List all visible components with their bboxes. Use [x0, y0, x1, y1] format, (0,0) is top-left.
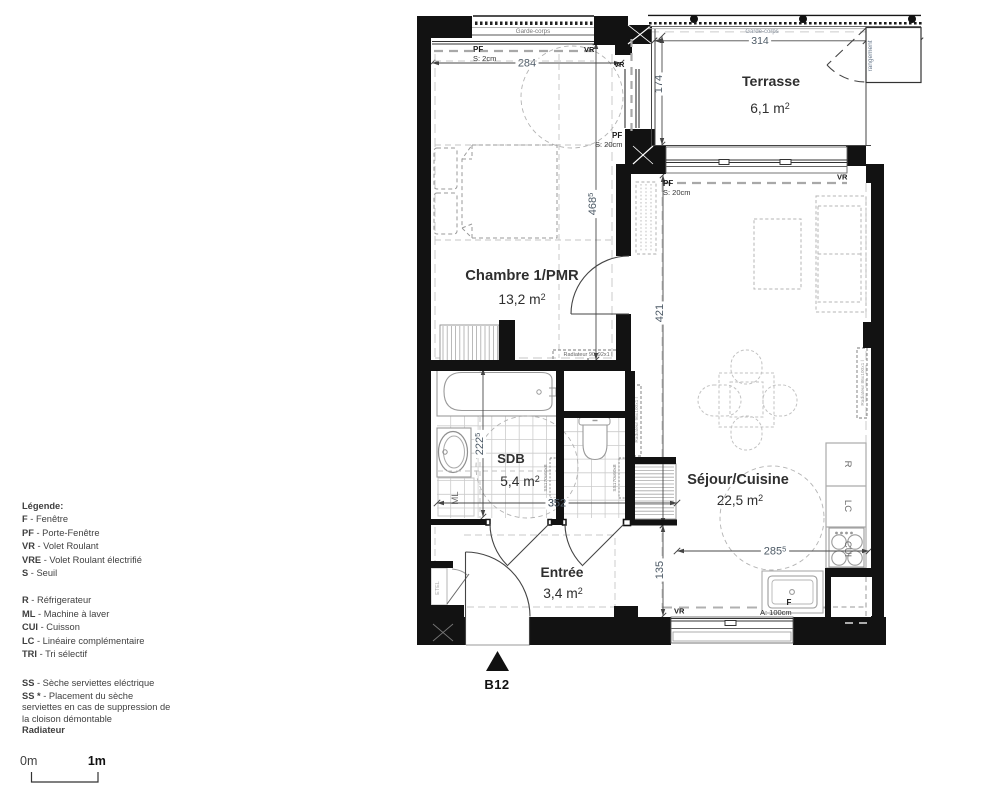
svg-text:Garde-corps: Garde-corps	[745, 29, 778, 35]
svg-text:PF: PF	[663, 179, 673, 188]
svg-text:22,5 m2: 22,5 m2	[717, 493, 763, 508]
svg-text:PF: PF	[612, 131, 622, 140]
svg-text:352: 352	[548, 498, 566, 510]
svg-text:3,4 m2: 3,4 m2	[543, 586, 583, 601]
svg-text:SS170x60x8: SS170x60x8	[543, 464, 549, 492]
svg-text:PF: PF	[473, 45, 483, 54]
svg-text:R: R	[842, 461, 853, 468]
svg-text:S: 20cm: S: 20cm	[663, 188, 691, 197]
svg-text:Terrasse: Terrasse	[742, 74, 800, 90]
svg-text:VR: VR	[614, 60, 625, 69]
svg-text:ETEL: ETEL	[435, 581, 441, 595]
svg-text:Radiateur 86x100x1 l: Radiateur 86x100x1 l	[860, 360, 866, 405]
svg-text:5,4 m2: 5,4 m2	[500, 474, 540, 489]
svg-text:LC: LC	[842, 500, 853, 512]
svg-text:6,1 m2: 6,1 m2	[750, 101, 790, 116]
svg-text:Garde-corps: Garde-corps	[516, 28, 550, 35]
svg-text:VR: VR	[584, 45, 595, 54]
svg-text:284: 284	[518, 58, 536, 70]
svg-text:rangement: rangement	[867, 40, 874, 71]
svg-text:VR: VR	[837, 173, 848, 182]
svg-text:13,2 m2: 13,2 m2	[498, 292, 545, 307]
svg-text:B12: B12	[484, 677, 509, 692]
svg-text:Entrée: Entrée	[541, 565, 584, 580]
svg-text:SDB: SDB	[497, 451, 524, 466]
svg-text:A: 100cm: A: 100cm	[760, 608, 792, 617]
svg-text:SS170x60x8: SS170x60x8	[612, 464, 618, 492]
svg-text:Chambre 1/PMR: Chambre 1/PMR	[465, 268, 579, 284]
svg-text:VR: VR	[674, 607, 685, 616]
svg-text:F: F	[787, 598, 792, 607]
svg-text:CUI: CUI	[842, 541, 853, 557]
svg-text:S: 2cm: S: 2cm	[473, 54, 496, 63]
svg-text:135: 135	[654, 561, 666, 579]
svg-text:421: 421	[654, 304, 666, 322]
svg-text:314: 314	[751, 35, 769, 47]
svg-text:Radiateur 90x92x1 l: Radiateur 90x92x1 l	[564, 352, 613, 358]
svg-text:Séjour/Cuisine: Séjour/Cuisine	[687, 472, 789, 488]
svg-text:S: 20cm: S: 20cm	[595, 140, 623, 149]
